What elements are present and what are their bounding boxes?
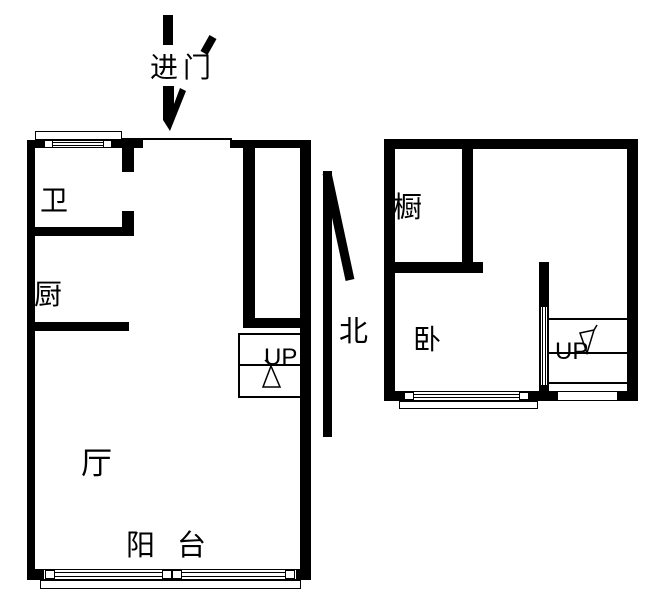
balcony-label: 阳台	[126, 531, 228, 560]
left-stair-up-label: UP	[264, 346, 297, 370]
north-label: 北	[339, 317, 368, 346]
bathroom-label: 卫	[40, 187, 68, 215]
right-stair-triangle-tail	[594, 325, 597, 330]
entry-label: 进门	[150, 54, 216, 82]
living-room-label: 厅	[81, 449, 112, 480]
cabinet-label: 橱	[393, 193, 422, 222]
kitchen-label: 厨	[34, 281, 62, 309]
entry-arrowhead	[163, 86, 186, 131]
annotation-layer	[0, 0, 672, 603]
bedroom-label: 卧	[413, 326, 441, 354]
floorplan-canvas: 进门 卫 厨 厅 阳台 北 橱 卧 UP UP	[0, 0, 672, 603]
right-stair-up-label: UP	[555, 340, 588, 364]
entry-arrow-dash	[163, 15, 173, 45]
